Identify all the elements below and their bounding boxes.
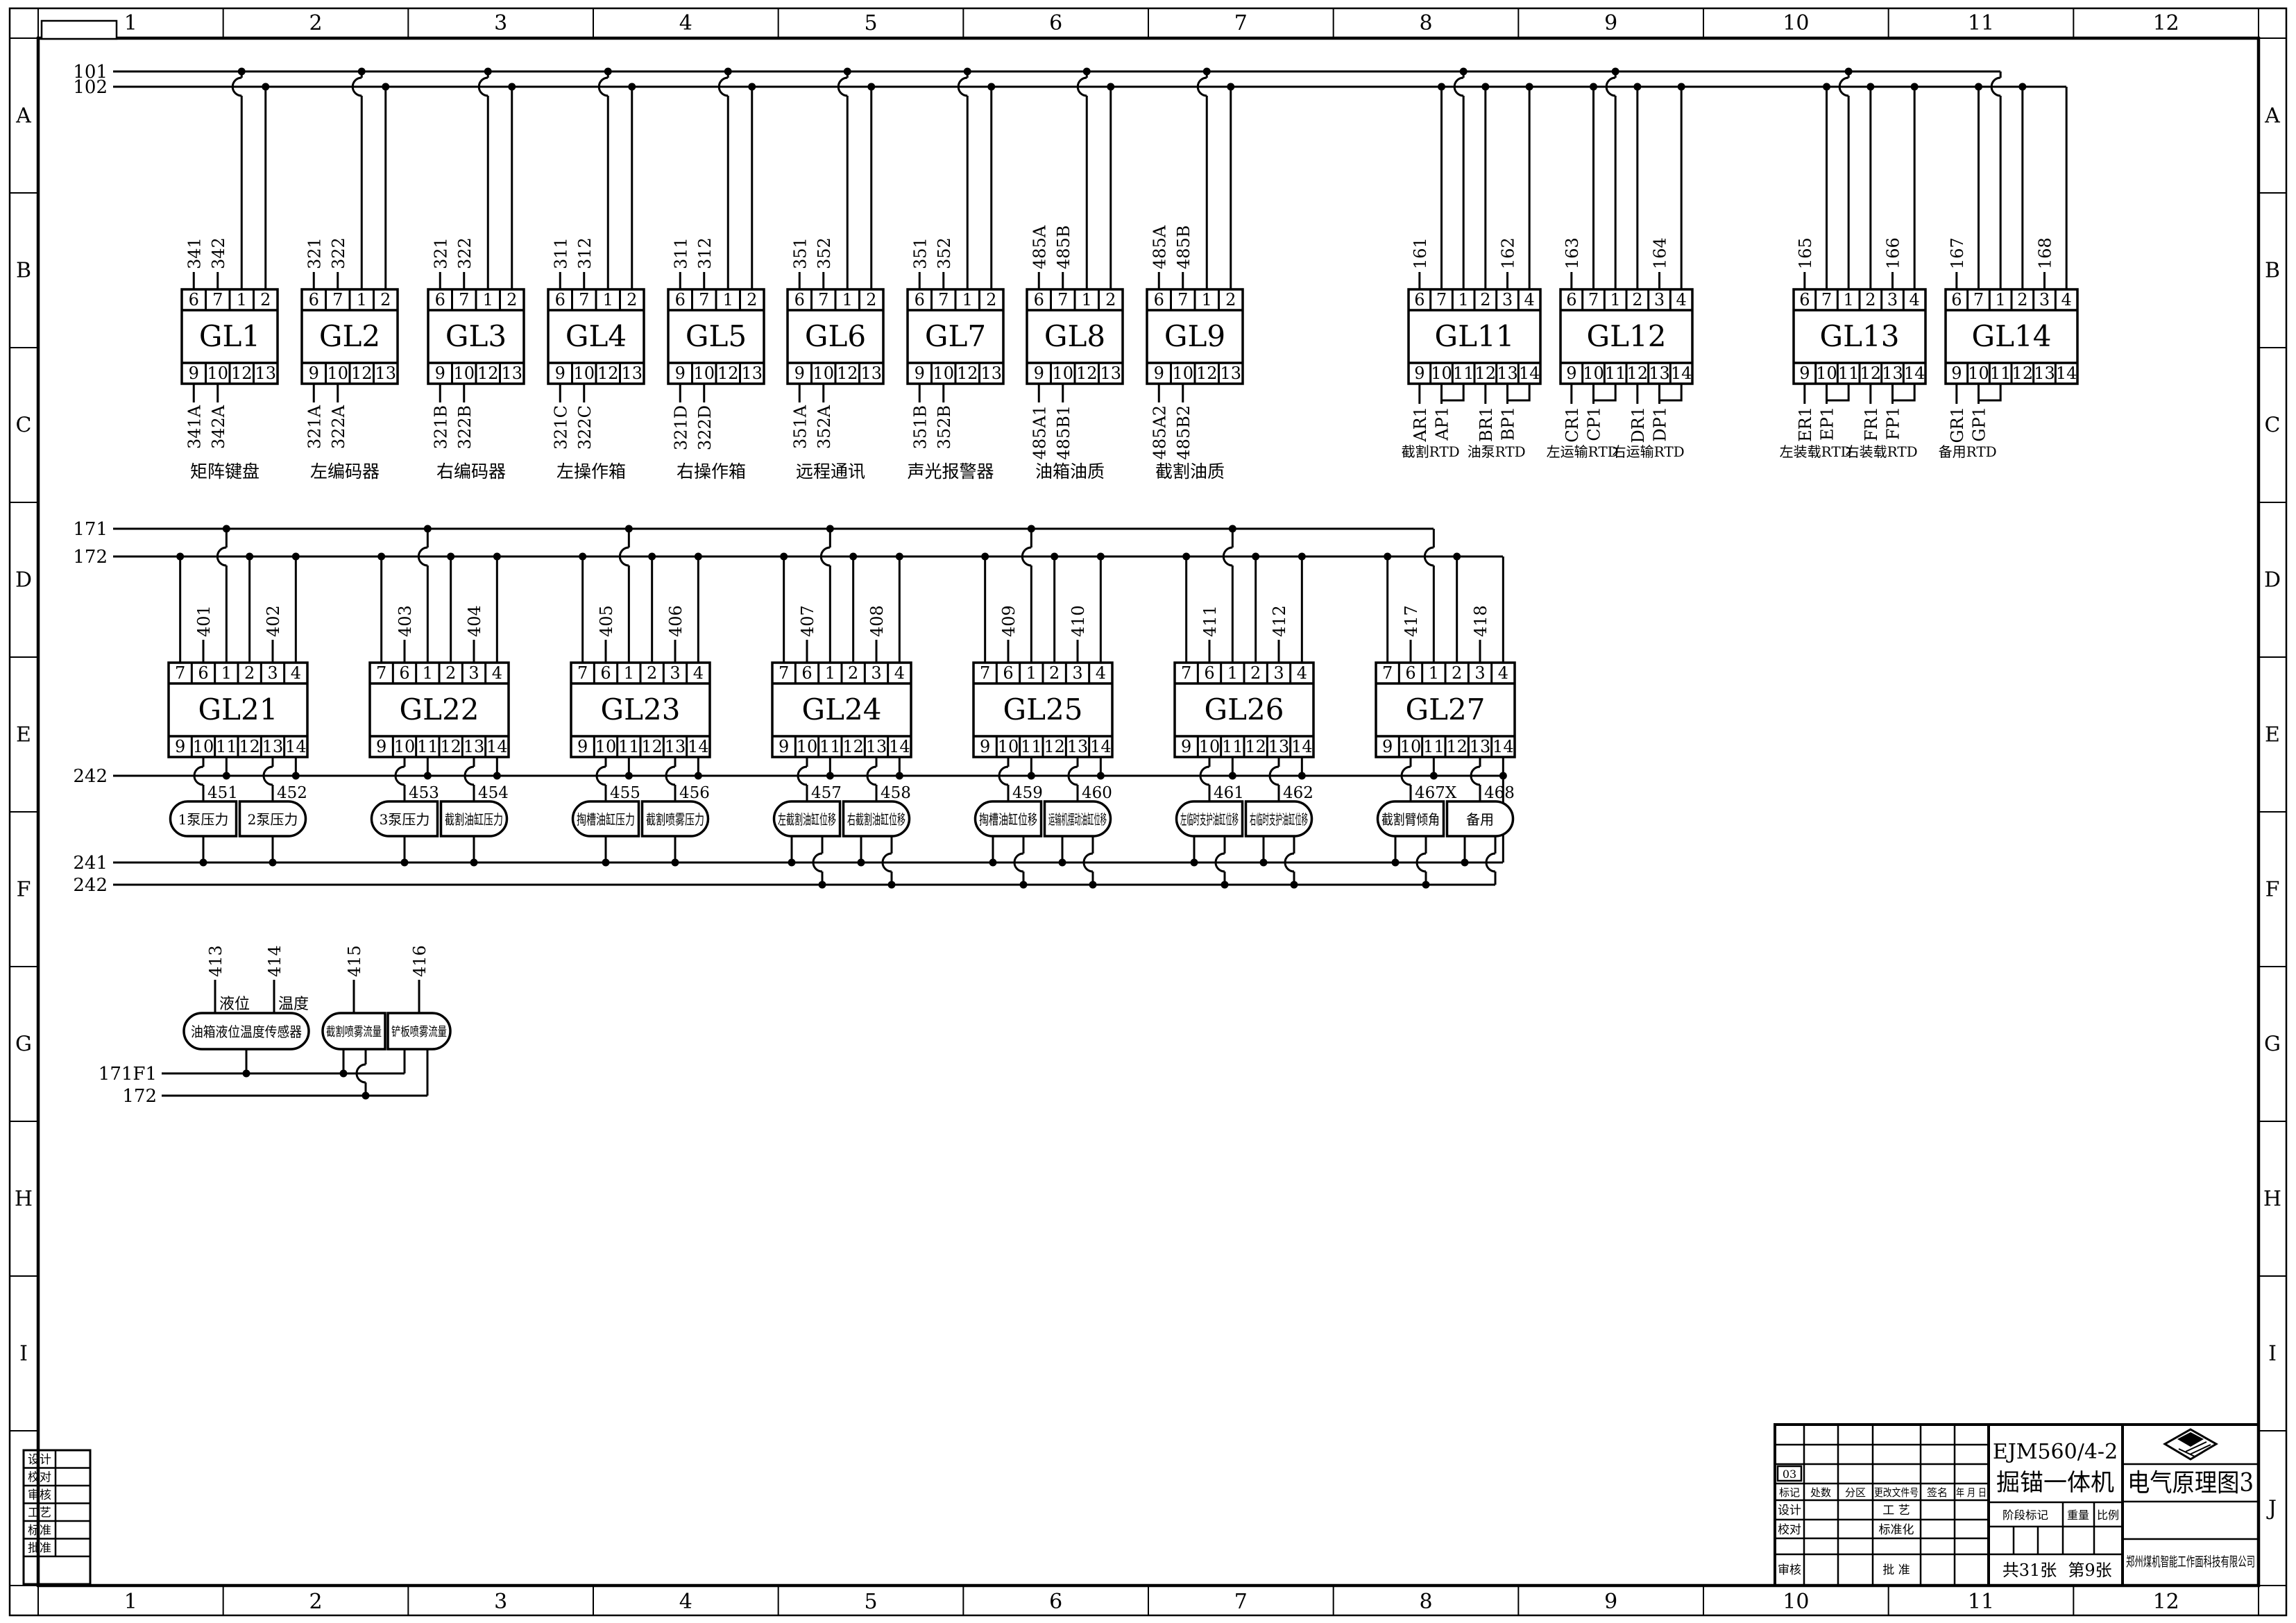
terminal-number: 13 <box>866 737 887 756</box>
approval-row-label: 批准 <box>28 1542 51 1556</box>
wire-number: 322A <box>329 405 348 449</box>
terminal-number: 2 <box>627 290 637 309</box>
column-number: 8 <box>1419 11 1432 35</box>
junction-dot <box>243 1070 250 1078</box>
terminal-number: 12 <box>231 364 253 383</box>
junction-dot <box>1227 83 1234 91</box>
junction-dot <box>1866 83 1874 91</box>
sensor-wire-number: 456 <box>679 784 710 802</box>
junction-dot <box>1203 68 1211 76</box>
row-letter: I <box>2268 1342 2277 1366</box>
column-number: 12 <box>2153 1590 2179 1614</box>
module-caption: 远程通讯 <box>796 461 865 482</box>
terminal-number: 10 <box>813 364 834 383</box>
junction-dot <box>1384 553 1391 561</box>
terminal-number: 11 <box>1453 364 1474 383</box>
terminal-number: 6 <box>399 663 409 683</box>
wire-number: EP1 <box>1818 407 1837 441</box>
wire-number: BP1 <box>1499 407 1518 441</box>
module-name: GL5 <box>686 319 747 353</box>
module-name: GL21 <box>198 692 278 726</box>
wire-number: 351 <box>910 237 930 269</box>
junction-dot <box>1298 772 1306 780</box>
wire-number: 412 <box>1270 605 1289 637</box>
terminal-number: 10 <box>1400 737 1422 756</box>
wire-number: 164 <box>1651 237 1670 269</box>
terminal-number: 13 <box>262 737 284 756</box>
sensor-wire-number: 454 <box>478 784 509 802</box>
jumper-wire <box>1660 384 1682 400</box>
row-letter: G <box>2264 1033 2281 1057</box>
row-letter: J <box>2266 1497 2277 1521</box>
wire-number: FP1 <box>1884 407 1903 440</box>
terminal-number: 12 <box>2012 364 2034 383</box>
tank-wire-tag: 液位 <box>219 996 250 1013</box>
junction-dot <box>1229 772 1236 780</box>
terminal-number: 9 <box>675 364 686 383</box>
stage-label: 阶段标记 <box>2002 1509 2048 1522</box>
terminal-number: 13 <box>1268 737 1290 756</box>
terminal-number: 3 <box>1654 290 1665 309</box>
terminal-number: 9 <box>189 364 199 383</box>
junction-dot <box>780 553 788 561</box>
junction-dot <box>724 68 732 76</box>
wire-number: CR1 <box>1563 407 1582 443</box>
module-caption: 左装载RTD <box>1780 443 1852 460</box>
junction-dot <box>1438 83 1445 91</box>
terminal-number: 2 <box>647 663 657 683</box>
terminal-number: 10 <box>207 364 228 383</box>
junction-dot <box>1845 68 1853 76</box>
junction-dot <box>484 68 492 76</box>
terminal-number: 10 <box>998 737 1019 756</box>
junction-dot <box>238 68 246 76</box>
terminal-number: 1 <box>357 290 367 309</box>
terminal-number: 1 <box>1844 290 1854 309</box>
junction-dot <box>1911 83 1919 91</box>
column-number: 6 <box>1049 11 1062 35</box>
module-name: GL12 <box>1587 319 1667 353</box>
sensor-wire-number: 460 <box>1082 784 1112 802</box>
terminal-number: 12 <box>957 364 978 383</box>
wire-number: 405 <box>597 605 616 637</box>
terminal-number: 12 <box>1196 364 1218 383</box>
sensor-wire-number: 468 <box>1484 784 1515 802</box>
terminal-number: 7 <box>699 290 709 309</box>
jumper-wire <box>1979 384 2001 400</box>
junction-dot <box>447 553 454 561</box>
terminal-number: 2 <box>1105 290 1116 309</box>
terminal-number: 13 <box>1067 737 1089 756</box>
junction-dot <box>1298 553 1306 561</box>
terminal-number: 6 <box>1003 663 1013 683</box>
terminal-number: 10 <box>394 737 416 756</box>
terminal-number: 3 <box>670 663 680 683</box>
column-number: 12 <box>2153 11 2179 35</box>
wire-number: 342 <box>209 237 228 269</box>
title-block: 03 标记 处数 分区 更改文件号 签名 年 月 日 设计 工 艺 校对 标准化… <box>1775 1425 2259 1586</box>
junction-dot <box>1430 772 1438 780</box>
company-logo-icon <box>2165 1429 2216 1459</box>
terminal-number: 10 <box>573 364 595 383</box>
terminal-number: 4 <box>1096 663 1106 683</box>
terminal-number: 2 <box>507 290 517 309</box>
terminal-number: 6 <box>1951 290 1962 309</box>
terminal-number: 10 <box>1172 364 1193 383</box>
module-caption: 左操作箱 <box>556 461 626 482</box>
sensor-label: 右临时支护油缸位移 <box>1250 811 1308 828</box>
terminal-number: 2 <box>1632 290 1642 309</box>
terminal-number: 13 <box>1497 364 1518 383</box>
column-number: 3 <box>494 1590 507 1614</box>
wire-number: FR1 <box>1862 407 1881 441</box>
inner-border <box>38 38 2259 1586</box>
approval-row-label: 工艺 <box>28 1506 51 1520</box>
row-letter: F <box>2265 878 2280 902</box>
schematic-generated: 112233445566778899101011111212AABBCCDDEE… <box>10 8 2286 1615</box>
junction-dot <box>508 83 516 91</box>
module-caption: 右操作箱 <box>677 461 746 482</box>
terminal-number: 11 <box>819 737 841 756</box>
terminal-number: 6 <box>675 290 686 309</box>
weight-label: 重量 <box>2067 1509 2089 1522</box>
wire-number: 406 <box>666 605 686 637</box>
terminal-number: 7 <box>938 290 949 309</box>
terminal-number: 10 <box>1968 364 1989 383</box>
header-cell: 年 月 日 <box>1956 1486 1987 1499</box>
wire-number: 417 <box>1402 605 1421 637</box>
jumper-wire <box>1508 384 1530 400</box>
row-letter: H <box>2263 1187 2281 1212</box>
module-caption: 油箱油质 <box>1035 461 1105 482</box>
sensor-label: 铲板喷雾流量 <box>391 1025 447 1039</box>
terminal-number: 12 <box>597 364 619 383</box>
terminal-number: 1 <box>1459 290 1469 309</box>
wire-number: 166 <box>1884 237 1903 269</box>
module-caption: 截割油质 <box>1155 461 1225 482</box>
wire-number: 485A <box>1150 225 1169 269</box>
terminal-number: 7 <box>212 290 223 309</box>
junction-dot <box>269 859 277 867</box>
terminal-number: 11 <box>417 737 439 756</box>
wire-number: 411 <box>1200 605 1220 637</box>
terminal-number: 6 <box>555 290 566 309</box>
terminal-number: 1 <box>842 290 853 309</box>
junction-dot <box>1083 68 1091 76</box>
terminal-number: 2 <box>260 290 271 309</box>
module-caption: 备用RTD <box>1939 443 1997 460</box>
terminal-number: 6 <box>1034 290 1044 309</box>
wire-number: 321C <box>551 405 570 450</box>
module-name: GL2 <box>319 319 380 353</box>
terminal-number: 14 <box>1493 737 1514 756</box>
terminal-number: 6 <box>189 290 199 309</box>
rev-code: 03 <box>1783 1468 1796 1481</box>
junction-dot <box>1392 859 1400 867</box>
junction-dot <box>867 83 875 91</box>
sensor-label: 截割臂倾角 <box>1381 811 1440 828</box>
sheet-frame <box>10 8 2286 1615</box>
terminal-number: 2 <box>380 290 391 309</box>
terminal-number: 10 <box>693 364 715 383</box>
sensor-label: 截割喷雾流量 <box>326 1025 382 1039</box>
terminal-number: 12 <box>1475 364 1497 383</box>
wire-number: 485A <box>1030 225 1049 269</box>
terminal-number: 10 <box>193 737 214 756</box>
row-letter: I <box>19 1342 28 1366</box>
wire-number: 341A <box>185 405 204 449</box>
terminal-number: 13 <box>1882 364 1903 383</box>
terminal-number: 4 <box>1676 290 1687 309</box>
terminal-number: 1 <box>221 663 232 683</box>
junction-dot <box>604 68 612 76</box>
wire-number: DR1 <box>1629 407 1648 443</box>
junction-dot <box>1678 83 1685 91</box>
terminal-number: 12 <box>1446 737 1468 756</box>
bus-label: 172 <box>73 547 108 568</box>
terminal-number: 2 <box>1250 663 1261 683</box>
terminal-number: 2 <box>445 663 456 683</box>
sensor-wire-number: 451 <box>207 784 238 802</box>
terminal-number: 13 <box>1100 364 1121 383</box>
approval-row-label: 审核 <box>28 1488 51 1502</box>
terminal-number: 4 <box>2061 290 2072 309</box>
wire-number: 407 <box>798 605 817 637</box>
row-label: 标准化 <box>1879 1523 1914 1537</box>
row-label: 工 艺 <box>1882 1504 1910 1518</box>
sensor-wire-number: 455 <box>610 784 640 802</box>
row-letter: H <box>15 1187 33 1212</box>
row-label: 审核 <box>1778 1563 1801 1577</box>
terminal-number: 9 <box>309 364 319 383</box>
junction-dot <box>748 83 756 91</box>
terminal-number: 4 <box>492 663 502 683</box>
schematic-canvas: 设计 校对 审核 工艺 标准 批准 03 标记 处数 分区 更改文件号 签名 年… <box>0 0 2296 1623</box>
module-name: GL6 <box>805 319 866 353</box>
terminal-number: 6 <box>198 663 208 683</box>
terminal-number: 12 <box>1860 364 1882 383</box>
sensor-label: 备用 <box>1466 811 1494 828</box>
terminal-number: 9 <box>1414 364 1425 383</box>
jumper-wire <box>1893 384 1915 400</box>
column-number: 4 <box>679 1590 692 1614</box>
module-caption: 矩阵键盘 <box>190 461 260 482</box>
terminal-number: 2 <box>2017 290 2027 309</box>
terminal-number: 7 <box>1382 663 1393 683</box>
sensor-label: 截割喷雾压力 <box>646 811 704 828</box>
terminal-number: 9 <box>577 737 588 756</box>
terminal-number: 7 <box>1057 290 1068 309</box>
junction-dot <box>602 859 610 867</box>
terminal-number: 9 <box>1181 737 1191 756</box>
terminal-number: 7 <box>376 663 386 683</box>
module-caption: 左运输RTD <box>1547 443 1619 460</box>
terminal-number: 6 <box>309 290 319 309</box>
wire-number: 352B <box>935 405 954 449</box>
wire-number: 161 <box>1411 237 1430 269</box>
terminal-number: 13 <box>2034 364 2055 383</box>
row-letter: F <box>17 878 31 902</box>
column-number: 7 <box>1234 1590 1248 1614</box>
wire-number: 351B <box>910 405 930 449</box>
terminal-number: 11 <box>618 737 640 756</box>
jumper-wire <box>1827 384 1849 400</box>
module-caption: 右装载RTD <box>1846 443 1918 460</box>
terminal-number: 6 <box>1405 663 1415 683</box>
column-number: 9 <box>1604 1590 1617 1614</box>
terminal-number: 6 <box>794 290 805 309</box>
terminal-number: 1 <box>624 663 634 683</box>
row-label: 批 准 <box>1882 1563 1910 1577</box>
terminal-number: 1 <box>1610 290 1621 309</box>
junction-dot <box>672 859 679 867</box>
terminal-number: 6 <box>1566 290 1576 309</box>
terminal-number: 4 <box>291 663 301 683</box>
terminal-number: 7 <box>818 290 828 309</box>
column-number: 10 <box>1783 11 1809 35</box>
wire-number: 322 <box>455 237 475 269</box>
sensor-label: 左临时支护油缸位移 <box>1180 811 1239 828</box>
terminal-number: 1 <box>1996 290 2006 309</box>
junction-dot <box>262 83 269 91</box>
junction-dot <box>246 553 253 561</box>
terminal-number: 13 <box>1649 364 1670 383</box>
module-name: GL25 <box>1003 692 1083 726</box>
wire-number: 416 <box>410 945 430 977</box>
terminal-number: 13 <box>741 364 763 383</box>
terminal-number: 9 <box>1034 364 1044 383</box>
terminal-number: 11 <box>1423 737 1445 756</box>
terminal-number: 3 <box>1273 663 1284 683</box>
terminal-number: 14 <box>688 737 709 756</box>
terminal-number: 1 <box>1082 290 1092 309</box>
terminal-number: 1 <box>423 663 433 683</box>
junction-dot <box>788 859 796 867</box>
column-number: 11 <box>1968 11 1994 35</box>
junction-dot <box>1028 525 1035 533</box>
terminal-number: 10 <box>453 364 475 383</box>
terminal-number: 14 <box>1090 737 1112 756</box>
terminal-number: 13 <box>255 364 276 383</box>
module-name: GL14 <box>1972 319 2052 353</box>
terminal-number: 1 <box>1429 663 1439 683</box>
terminal-number: 12 <box>440 737 461 756</box>
drawing-title: 电气原理图3 <box>2127 1469 2254 1497</box>
terminal-number: 1 <box>1202 290 1212 309</box>
approval-row-label: 设计 <box>28 1453 51 1467</box>
terminal-number: 14 <box>889 737 910 756</box>
terminal-number: 9 <box>915 364 925 383</box>
column-number: 11 <box>1968 1590 1994 1614</box>
outer-border <box>10 8 2286 1615</box>
junction-dot <box>340 1070 348 1078</box>
junction-dot <box>1229 525 1236 533</box>
product-model: EJM560/4-2 <box>1993 1440 2118 1464</box>
column-number: 3 <box>494 11 507 35</box>
wire-number: AR1 <box>1411 407 1430 443</box>
terminal-number: 6 <box>915 290 925 309</box>
terminal-number: 2 <box>986 290 996 309</box>
column-number: 6 <box>1049 1590 1062 1614</box>
terminal-number: 7 <box>980 663 990 683</box>
approval-row-label: 标准 <box>28 1524 51 1538</box>
column-number: 10 <box>1783 1590 1809 1614</box>
jumper-wire <box>1442 384 1464 400</box>
wire-number: 322D <box>695 405 715 450</box>
junction-dot <box>1823 83 1830 91</box>
bus-label: 172 <box>122 1086 157 1107</box>
terminal-number: 7 <box>579 290 589 309</box>
terminal-number: 12 <box>842 737 864 756</box>
wire-number: 322B <box>455 405 475 449</box>
junction-dot <box>176 553 184 561</box>
junction-dot <box>987 83 995 91</box>
wire-number: 351 <box>790 237 810 269</box>
junction-dot <box>695 772 702 780</box>
terminal-number: 6 <box>1414 290 1425 309</box>
row-letter: E <box>2265 723 2280 747</box>
junction-dot <box>1633 83 1641 91</box>
terminal-number: 4 <box>1498 663 1508 683</box>
sheet-total: 共31张 <box>2002 1561 2057 1580</box>
terminal-number: 2 <box>1049 663 1060 683</box>
terminal-number: 13 <box>1220 364 1241 383</box>
junction-dot <box>844 68 851 76</box>
wire-number: 162 <box>1499 237 1518 269</box>
terminal-number: 13 <box>621 364 643 383</box>
wire-number: 410 <box>1069 605 1088 637</box>
terminal-number: 3 <box>1887 290 1898 309</box>
junction-dot <box>401 859 409 867</box>
wire-number: 408 <box>867 605 887 637</box>
terminal-number: 13 <box>665 737 686 756</box>
terminal-number: 14 <box>1904 364 1925 383</box>
wire-number: 485B1 <box>1054 405 1073 460</box>
jumper-wire <box>1594 384 1616 400</box>
terminal-number: 4 <box>894 663 905 683</box>
wire-number: GR1 <box>1948 407 1967 443</box>
header-cell: 标记 <box>1779 1486 1800 1499</box>
terminal-number: 6 <box>1799 290 1810 309</box>
bus-label: 171F1 <box>99 1064 157 1085</box>
wire-number: 485B <box>1054 226 1073 269</box>
row-label: 校对 <box>1778 1523 1801 1537</box>
terminal-number: 7 <box>1181 663 1191 683</box>
junction-dot <box>625 772 633 780</box>
terminal-number: 9 <box>1951 364 1962 383</box>
junction-dot <box>858 859 865 867</box>
junction-dot <box>362 1092 370 1100</box>
junction-dot <box>1260 859 1268 867</box>
wire-number: 414 <box>265 945 284 977</box>
junction-dot <box>1097 553 1105 561</box>
junction-dot <box>1182 553 1190 561</box>
terminal-number: 7 <box>1588 290 1599 309</box>
sensor-label: 掏槽油缸位移 <box>979 811 1037 828</box>
junction-dot <box>1453 553 1461 561</box>
terminal-number: 3 <box>267 663 278 683</box>
sensor-label: 右截割油缸位移 <box>847 811 905 828</box>
module-name: GL8 <box>1044 319 1105 353</box>
terminal-number: 9 <box>1382 737 1393 756</box>
row-letter: G <box>15 1033 32 1057</box>
terminal-number: 13 <box>1470 737 1491 756</box>
company-name: 郑州煤机智能工作面科技有限公司 <box>2126 1554 2255 1570</box>
junction-dot <box>1422 881 1430 889</box>
wire-number: 485A1 <box>1030 405 1049 459</box>
terminal-number: 12 <box>717 364 739 383</box>
terminal-number: 10 <box>1052 364 1073 383</box>
